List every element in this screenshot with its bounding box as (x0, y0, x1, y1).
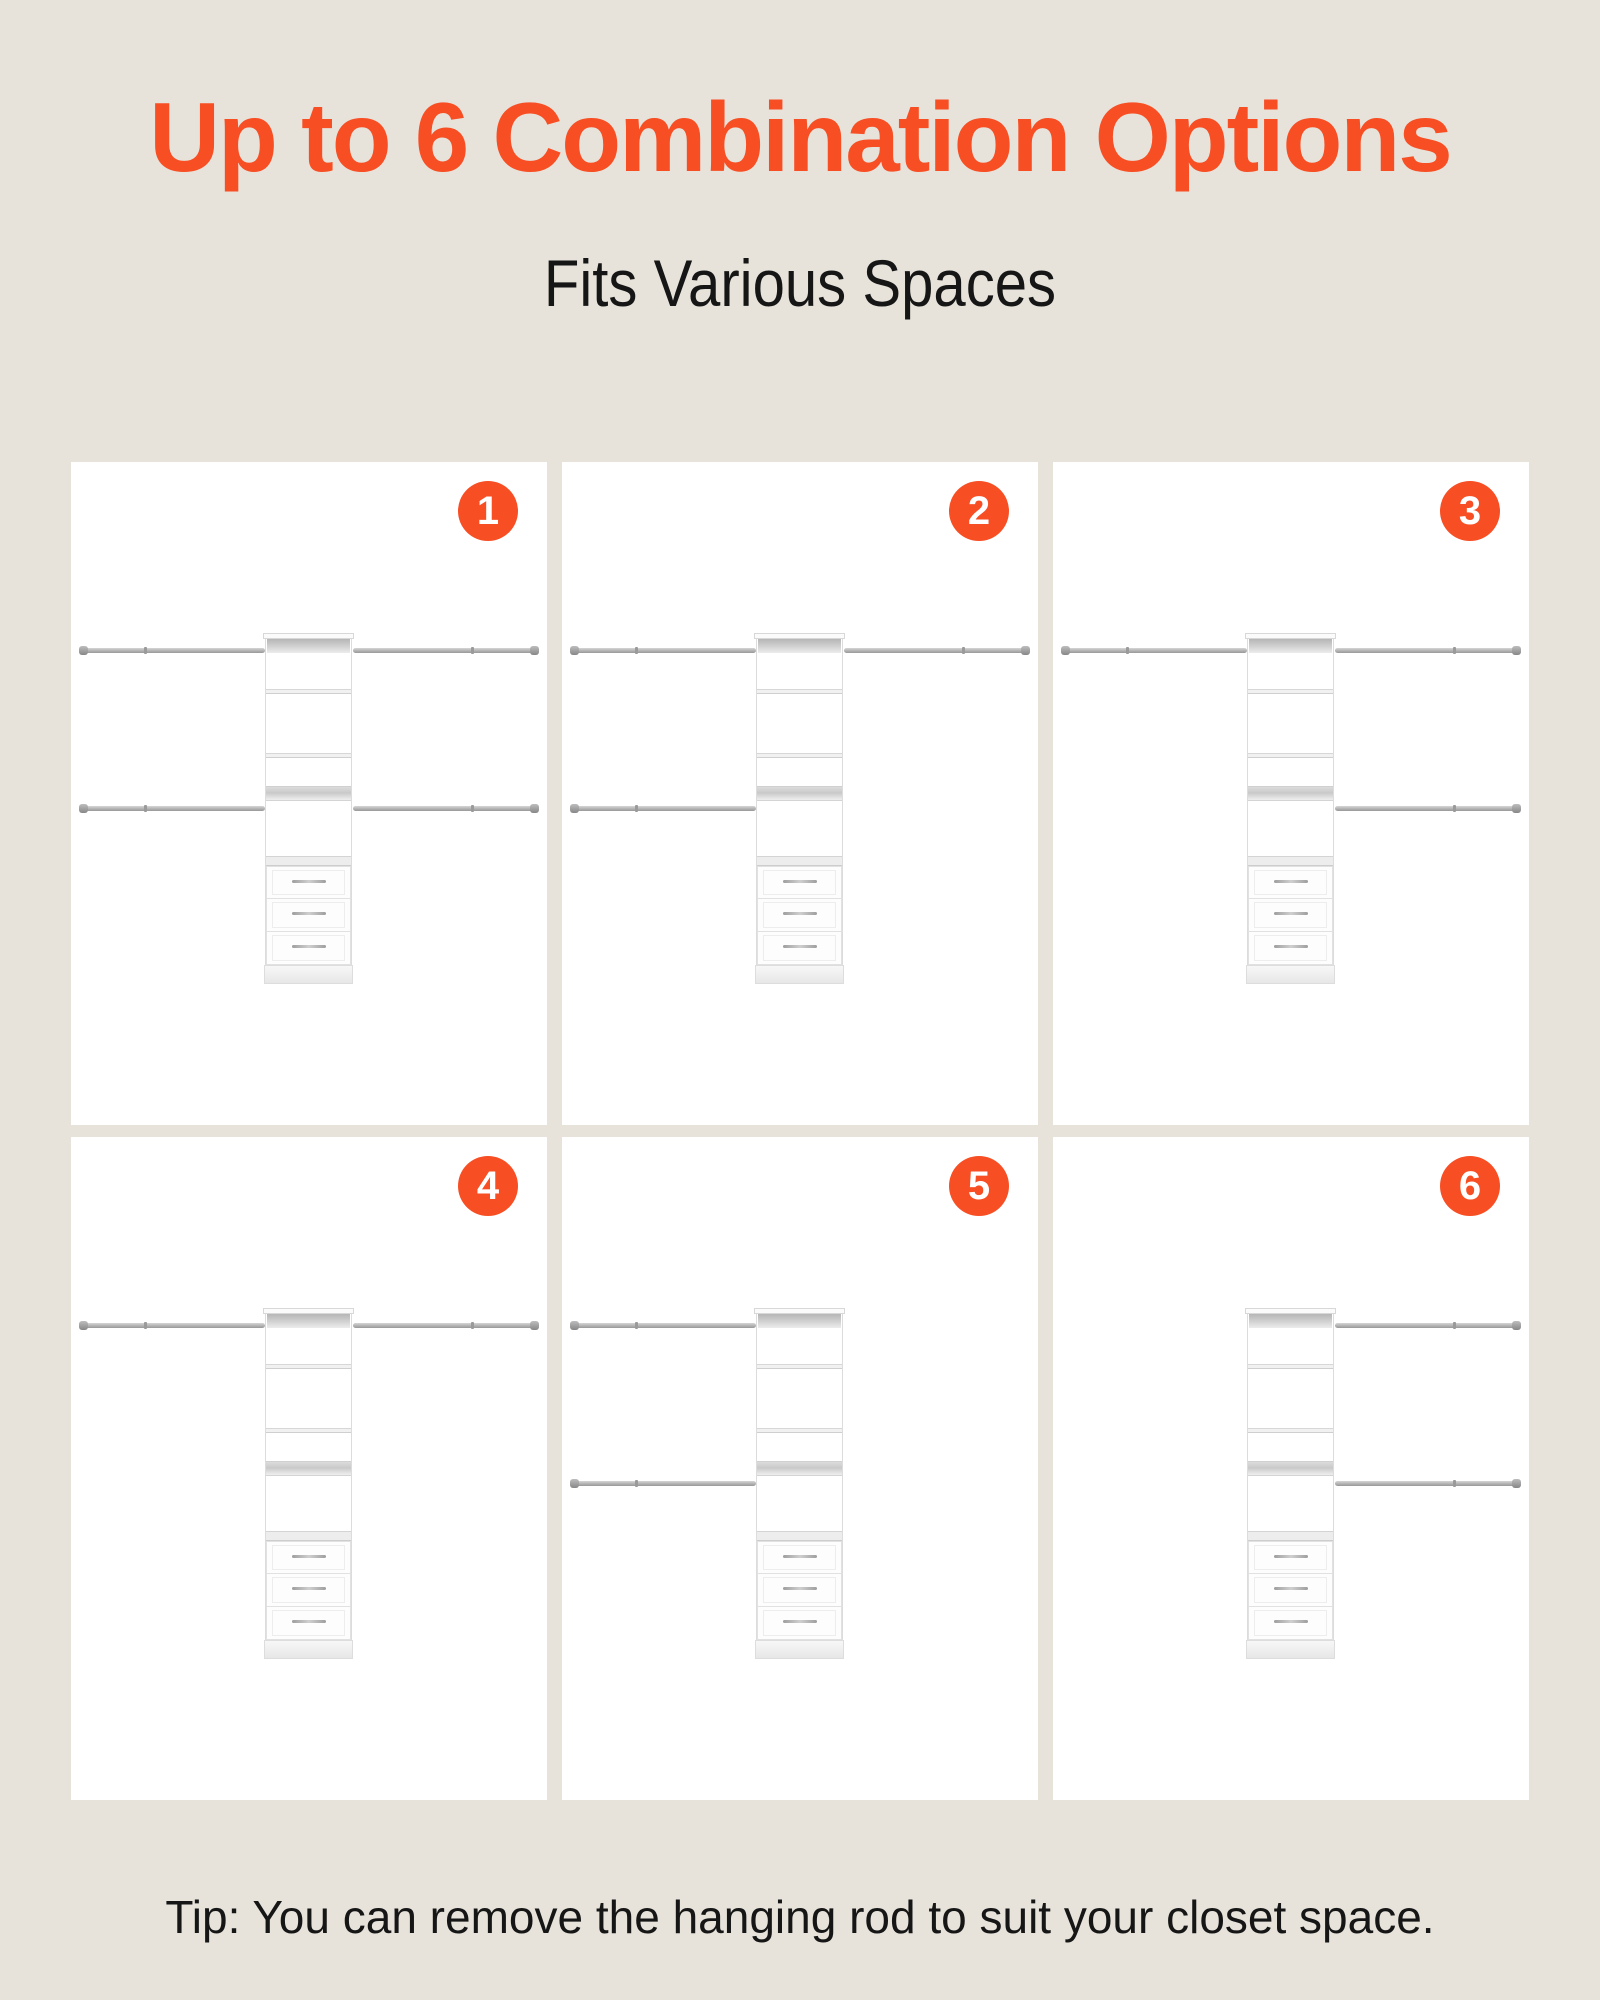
drawer (266, 1574, 351, 1607)
option-card-6: 6 (1053, 1137, 1529, 1800)
drawer-panel (1254, 902, 1327, 928)
drawer-panel (763, 902, 836, 928)
closet-unit-illustration (562, 462, 1038, 1125)
hanging-rod-top-right (844, 648, 1028, 653)
option-card-4: 4 (71, 1137, 547, 1800)
drawer (757, 1607, 842, 1640)
drawer-panel (272, 935, 345, 961)
hanging-rod-top-right (353, 1323, 537, 1328)
tower-shelf (266, 1428, 351, 1433)
tower-bottom-board (266, 856, 351, 866)
drawer-panel (1254, 1577, 1327, 1603)
tower-double-shelf (1248, 786, 1333, 801)
hanging-rod-mid-left (81, 806, 265, 811)
tower-shelf (757, 689, 842, 694)
tower-plinth (755, 965, 844, 984)
drawer-handle (1274, 880, 1308, 883)
tower-bottom-board (266, 1531, 351, 1541)
closet-unit-illustration (71, 1137, 547, 1800)
drawer (757, 1541, 842, 1574)
shelf-tower (265, 633, 352, 984)
page-subtitle: Fits Various Spaces (96, 250, 1504, 316)
hanging-rod-mid-right (1335, 1481, 1519, 1486)
drawer (266, 1541, 351, 1574)
hanging-rod-top-right (1335, 648, 1519, 653)
tower-shelf (266, 753, 351, 758)
drawer-handle (783, 912, 817, 915)
drawer-handle (292, 1555, 326, 1558)
tower-double-shelf (757, 786, 842, 801)
closet-unit-illustration (1053, 1137, 1529, 1800)
drawer-handle (783, 880, 817, 883)
drawer-handle (292, 1620, 326, 1623)
tower-shelf (757, 1428, 842, 1433)
hanging-rod-top-left (81, 1323, 265, 1328)
hanging-rod-top-right (353, 648, 537, 653)
tower-top-shade (1249, 1314, 1332, 1328)
options-grid: 1 (71, 462, 1529, 1800)
drawer (1248, 1607, 1333, 1640)
tower-shelf (757, 753, 842, 758)
tower-shelf (1248, 753, 1333, 758)
option-card-2: 2 (562, 462, 1038, 1125)
drawer (1248, 932, 1333, 965)
tower-shelf (1248, 689, 1333, 694)
tower-shelf (757, 1364, 842, 1369)
drawer (1248, 899, 1333, 932)
drawer (757, 1574, 842, 1607)
hanging-rod-mid-right (353, 806, 537, 811)
drawer (1248, 1574, 1333, 1607)
drawer-handle (1274, 1587, 1308, 1590)
shelf-tower (1247, 1308, 1334, 1659)
tower-plinth (1246, 1640, 1335, 1659)
drawer-panel (763, 1577, 836, 1603)
page-title: Up to 6 Combination Options (0, 88, 1600, 186)
tower-double-shelf (266, 1461, 351, 1476)
drawer-handle (1274, 1620, 1308, 1623)
closet-unit-illustration (1053, 462, 1529, 1125)
drawer-handle (1274, 1555, 1308, 1558)
drawer-handle (783, 945, 817, 948)
drawer-stack (266, 1541, 351, 1640)
hanging-rod-top-left (1063, 648, 1247, 653)
option-card-1: 1 (71, 462, 547, 1125)
tower-shelf (266, 1364, 351, 1369)
option-card-5: 5 (562, 1137, 1038, 1800)
drawer-stack (1248, 1541, 1333, 1640)
drawer-handle (783, 1555, 817, 1558)
drawer-panel (763, 1610, 836, 1636)
drawer (266, 899, 351, 932)
tower-double-shelf (1248, 1461, 1333, 1476)
drawer (266, 932, 351, 965)
tower-shelf (266, 689, 351, 694)
shelf-tower (756, 1308, 843, 1659)
tower-bottom-board (1248, 1531, 1333, 1541)
drawer-handle (783, 1620, 817, 1623)
drawer-panel (1254, 1610, 1327, 1636)
hanging-rod-top-left (572, 648, 756, 653)
closet-unit-illustration (562, 1137, 1038, 1800)
tower-plinth (755, 1640, 844, 1659)
drawer-handle (1274, 912, 1308, 915)
drawer-panel (272, 1577, 345, 1603)
tower-shelf (1248, 1428, 1333, 1433)
drawer-panel (763, 935, 836, 961)
drawer-handle (1274, 945, 1308, 948)
tower-top-shade (758, 1314, 841, 1328)
tower-top-shade (1249, 639, 1332, 653)
tower-top-shade (267, 1314, 350, 1328)
tower-bottom-board (1248, 856, 1333, 866)
drawer-handle (292, 912, 326, 915)
drawer-stack (266, 866, 351, 965)
drawer-panel (272, 1610, 345, 1636)
tower-plinth (264, 1640, 353, 1659)
drawer-panel (272, 902, 345, 928)
drawer (757, 932, 842, 965)
drawer-stack (757, 866, 842, 965)
hanging-rod-top-right (1335, 1323, 1519, 1328)
tower-bottom-board (757, 1531, 842, 1541)
infographic-page: { "header": { "title": "Up to 6 Combinat… (0, 0, 1600, 2000)
drawer-stack (757, 1541, 842, 1640)
tower-bottom-board (757, 856, 842, 866)
tower-shelf (1248, 1364, 1333, 1369)
tip-text: Tip: You can remove the hanging rod to s… (0, 1892, 1600, 1943)
tower-double-shelf (757, 1461, 842, 1476)
drawer-handle (292, 880, 326, 883)
shelf-tower (265, 1308, 352, 1659)
tower-plinth (264, 965, 353, 984)
drawer-handle (783, 1587, 817, 1590)
drawer-panel (1254, 935, 1327, 961)
hanging-rod-mid-left (572, 1481, 756, 1486)
tower-plinth (1246, 965, 1335, 984)
hanging-rod-mid-left (572, 806, 756, 811)
hanging-rod-top-left (572, 1323, 756, 1328)
hanging-rod-mid-right (1335, 806, 1519, 811)
drawer (757, 899, 842, 932)
drawer-stack (1248, 866, 1333, 965)
hanging-rod-top-left (81, 648, 265, 653)
drawer-handle (292, 1587, 326, 1590)
drawer (757, 866, 842, 899)
shelf-tower (756, 633, 843, 984)
closet-unit-illustration (71, 462, 547, 1125)
tower-top-shade (758, 639, 841, 653)
drawer (1248, 866, 1333, 899)
drawer-handle (292, 945, 326, 948)
drawer (266, 866, 351, 899)
drawer (1248, 1541, 1333, 1574)
option-card-3: 3 (1053, 462, 1529, 1125)
tower-double-shelf (266, 786, 351, 801)
tower-top-shade (267, 639, 350, 653)
drawer (266, 1607, 351, 1640)
shelf-tower (1247, 633, 1334, 984)
